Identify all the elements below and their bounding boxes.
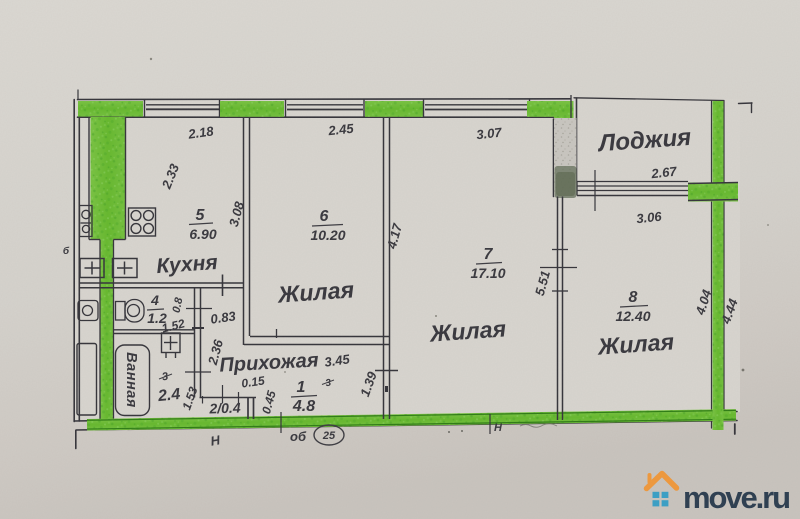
svg-text:2.67: 2.67 bbox=[650, 164, 678, 182]
svg-text:4: 4 bbox=[150, 292, 159, 308]
svg-text:Жилая: Жилая bbox=[428, 315, 507, 346]
svg-text:б: б bbox=[63, 245, 70, 257]
svg-text:1: 1 bbox=[297, 379, 306, 396]
svg-text:25: 25 bbox=[322, 430, 336, 442]
svg-text:2.45: 2.45 bbox=[327, 121, 355, 139]
svg-text:Кухня: Кухня bbox=[156, 251, 219, 278]
svg-text:2/0.4: 2/0.4 bbox=[208, 399, 241, 416]
svg-text:Ванная: Ванная bbox=[123, 352, 139, 408]
svg-text:Н: Н bbox=[494, 422, 503, 434]
svg-text:12.40: 12.40 bbox=[615, 308, 650, 324]
svg-text:6: 6 bbox=[320, 208, 329, 225]
svg-text:10.20: 10.20 bbox=[310, 227, 345, 243]
svg-text:8: 8 bbox=[629, 289, 638, 306]
svg-text:5: 5 bbox=[196, 207, 206, 224]
svg-text:об: об bbox=[290, 429, 307, 444]
svg-text:move.ru: move.ru bbox=[683, 480, 790, 515]
svg-text:3.07: 3.07 bbox=[476, 125, 503, 143]
svg-text:17.10: 17.10 bbox=[470, 265, 505, 281]
svg-text:4.8: 4.8 bbox=[292, 398, 315, 415]
svg-text:2.4: 2.4 bbox=[156, 386, 181, 405]
svg-text:7: 7 bbox=[484, 246, 494, 263]
svg-text:6.90: 6.90 bbox=[189, 226, 216, 242]
svg-text:Жилая: Жилая bbox=[596, 328, 675, 359]
svg-text:3.06: 3.06 bbox=[636, 209, 663, 227]
svg-text:Жилая: Жилая bbox=[276, 276, 355, 307]
